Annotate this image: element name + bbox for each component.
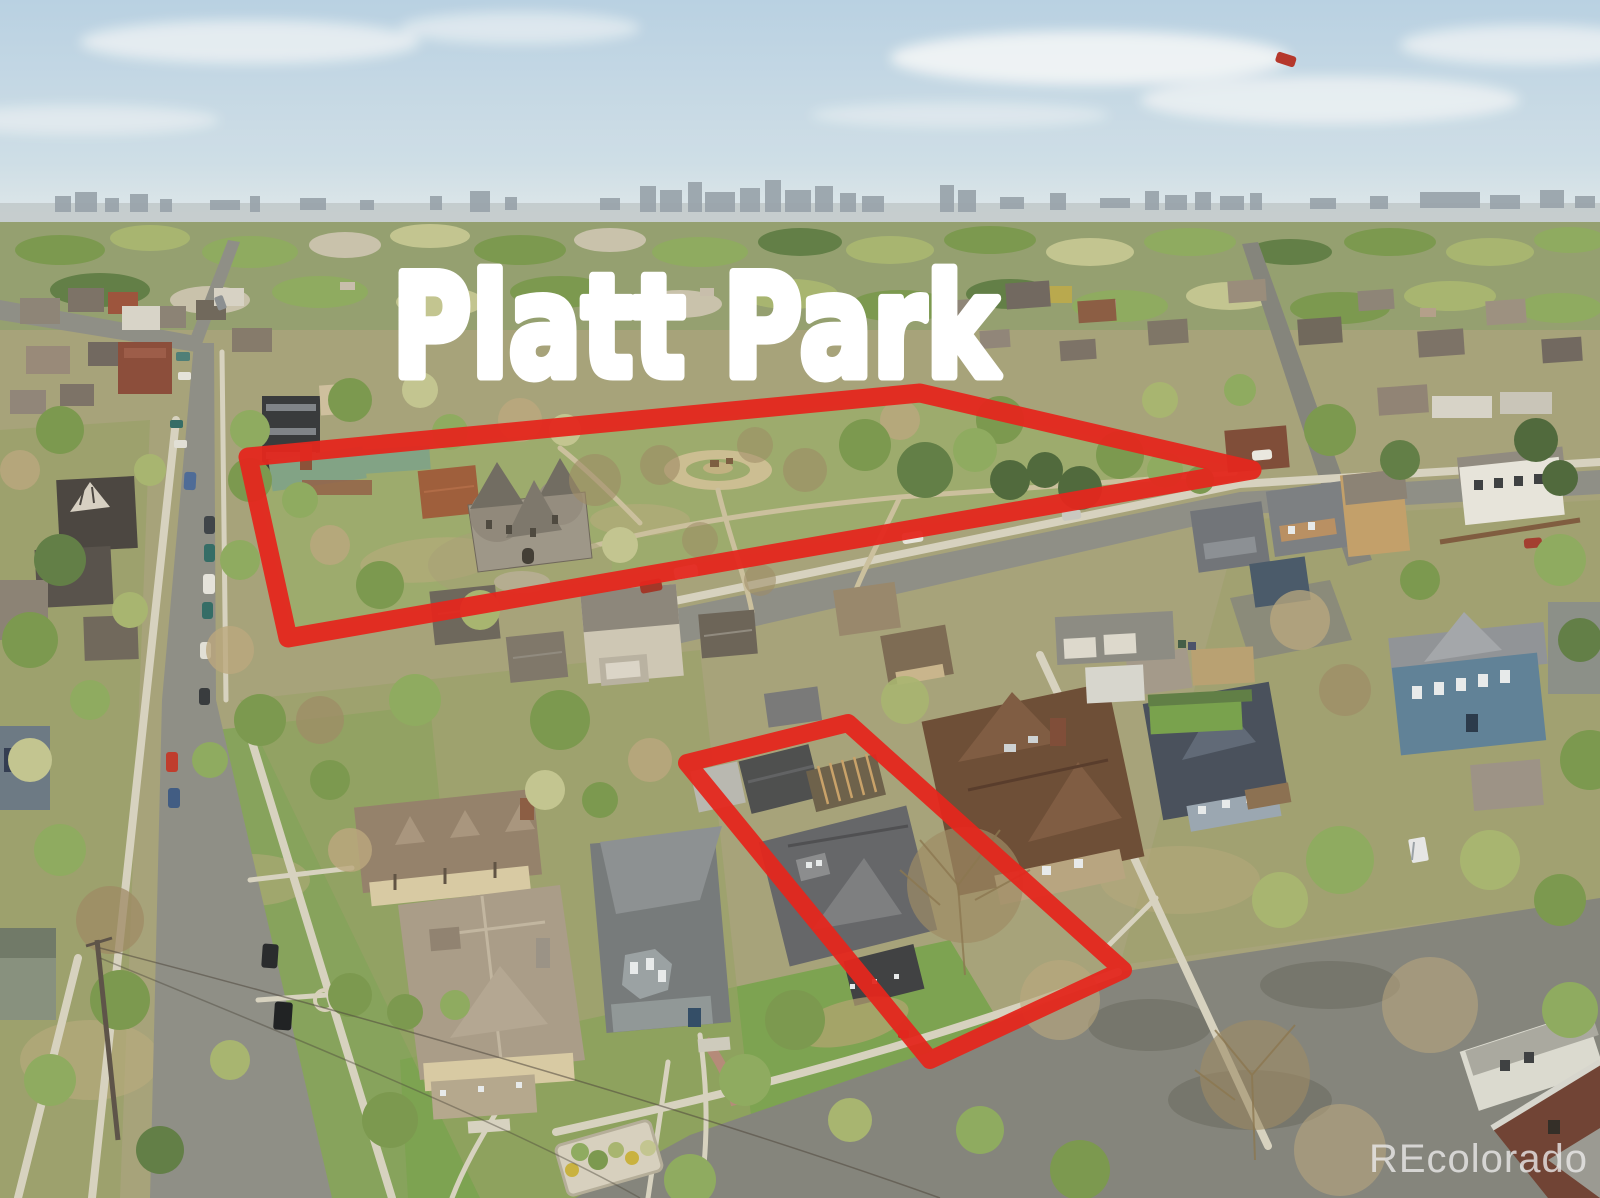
park-name-overlay: Platt Park xyxy=(392,245,1001,410)
aerial-photo: Platt Park REcolorado xyxy=(0,0,1600,1198)
recolorado-watermark: REcolorado xyxy=(1369,1137,1588,1181)
